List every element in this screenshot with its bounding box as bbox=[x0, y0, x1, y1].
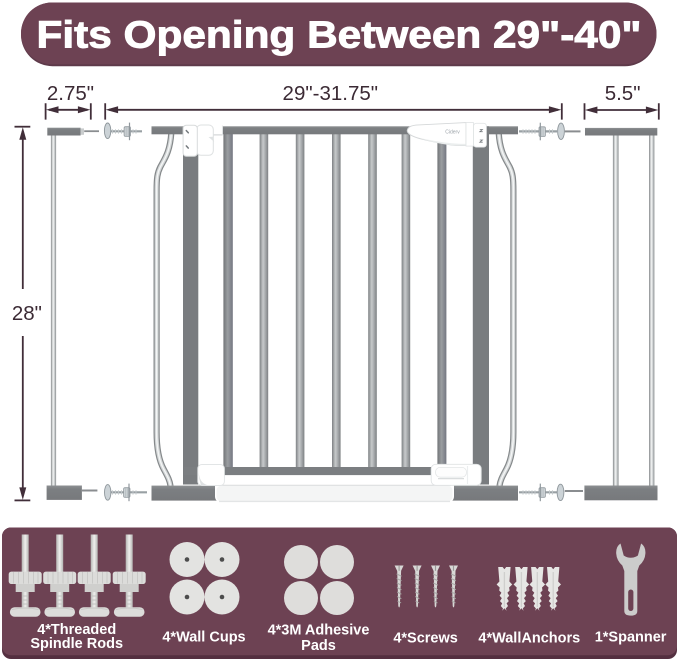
svg-text:29"-31.75": 29"-31.75" bbox=[283, 82, 378, 105]
svg-text:Pads: Pads bbox=[301, 638, 336, 654]
svg-text:28": 28" bbox=[12, 302, 42, 325]
svg-text:2.75": 2.75" bbox=[47, 82, 94, 105]
svg-text:1*Spanner: 1*Spanner bbox=[595, 630, 667, 646]
svg-text:5.5": 5.5" bbox=[605, 82, 641, 105]
svg-text:4*3M Adhesive: 4*3M Adhesive bbox=[268, 623, 370, 639]
svg-text:Fits Opening Between 29"-40": Fits Opening Between 29"-40" bbox=[37, 15, 642, 57]
svg-text:4*Wall Cups: 4*Wall Cups bbox=[162, 630, 245, 646]
svg-text:4*WallAnchors: 4*WallAnchors bbox=[478, 631, 580, 647]
svg-text:Ciderv: Ciderv bbox=[445, 129, 460, 135]
svg-text:4*Screws: 4*Screws bbox=[393, 631, 458, 647]
svg-text:Spindle Rods: Spindle Rods bbox=[30, 636, 123, 652]
